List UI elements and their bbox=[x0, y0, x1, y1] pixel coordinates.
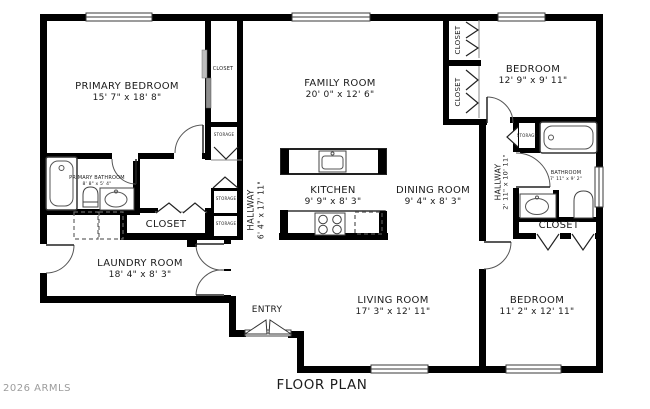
wall bbox=[205, 20, 211, 160]
closet-label-family-2: CLOSET bbox=[454, 78, 462, 107]
wall bbox=[596, 14, 603, 373]
wall bbox=[479, 238, 486, 366]
room-label-kitchen: KITCHEN 9' 9" x 8' 3" bbox=[305, 184, 362, 209]
bathtub-icon bbox=[540, 122, 597, 153]
room-dims: 7' 11" x 9' 2" bbox=[550, 177, 582, 183]
watermark: 2026 ARMLS bbox=[3, 383, 71, 394]
room-label-hallway-main: HALLWAY 6' 4" x 17' 11" bbox=[246, 181, 265, 239]
room-name: CLOSET bbox=[454, 26, 462, 55]
closet-label-strip: CLOSET bbox=[213, 66, 234, 73]
closet-label-left: CLOSET bbox=[146, 218, 187, 231]
room-dims: 20' 0" x 12' 6" bbox=[304, 90, 375, 102]
room-label-family-room: FAMILY ROOM 20' 0" x 12' 6" bbox=[304, 77, 375, 102]
room-label-dining-room: DINING ROOM 9' 4" x 8' 3" bbox=[396, 184, 470, 209]
room-dims: 9' 9" x 8' 3" bbox=[305, 197, 362, 209]
wall bbox=[187, 240, 197, 247]
room-dims: 15' 7" x 18' 8" bbox=[75, 93, 179, 105]
room-name: DINING ROOM bbox=[396, 184, 470, 197]
storage-label: STORAGE bbox=[517, 133, 537, 138]
room-label-bathroom: BATHROOM 7' 11" x 9' 2" bbox=[550, 170, 582, 182]
room-name: STORAGE bbox=[214, 132, 234, 137]
room-label-entry: ENTRY bbox=[252, 305, 283, 317]
wall bbox=[510, 117, 603, 123]
room-dims: 2' 11" x 10' 11" bbox=[503, 154, 511, 209]
room-label-living-room: LIVING ROOM 17' 3" x 12' 11" bbox=[356, 294, 431, 319]
wall bbox=[120, 233, 212, 240]
room-name: PRIMARY BATHROOM bbox=[69, 175, 125, 182]
stove-icon bbox=[315, 213, 345, 235]
wall bbox=[224, 239, 231, 297]
wall bbox=[443, 60, 481, 66]
storage-label: STORAGE bbox=[214, 132, 234, 137]
room-name: ENTRY bbox=[252, 305, 283, 317]
entry-door-icon bbox=[245, 320, 291, 336]
room-dims: 17' 3" x 12' 11" bbox=[356, 307, 431, 319]
wall bbox=[211, 213, 243, 216]
sink-icon bbox=[520, 194, 556, 218]
storage-label: STORAGE bbox=[216, 196, 236, 201]
room-label-bedroom-bottom: BEDROOM 11' 2" x 12' 11" bbox=[500, 294, 575, 319]
room-dims: 8' 8" x 5' 4" bbox=[69, 182, 125, 188]
room-dims: 11' 2" x 12' 11" bbox=[500, 307, 575, 319]
room-name: PRIMARY BEDROOM bbox=[75, 80, 179, 93]
kitchen-counter bbox=[279, 210, 388, 240]
room-name: FAMILY ROOM bbox=[304, 77, 375, 90]
wall bbox=[133, 158, 140, 215]
sink-icon bbox=[100, 188, 134, 210]
toilet-icon bbox=[574, 191, 593, 218]
wall bbox=[120, 208, 158, 213]
wall bbox=[479, 125, 486, 240]
wall bbox=[201, 153, 206, 159]
wall bbox=[297, 366, 603, 373]
wall bbox=[237, 163, 243, 240]
room-label-hallway-right: HALLWAY 2' 11" x 10' 11" bbox=[494, 154, 511, 209]
wall bbox=[513, 148, 540, 153]
wall bbox=[205, 122, 243, 127]
storage-label: STORAGE bbox=[216, 221, 236, 226]
toilet-icon bbox=[83, 187, 98, 207]
room-name: CLOSET bbox=[539, 219, 580, 232]
wall bbox=[137, 153, 175, 159]
room-dims: 6' 4" x 17' 11" bbox=[257, 181, 266, 239]
room-name: CLOSET bbox=[146, 218, 187, 231]
room-name: STORAGE bbox=[216, 221, 236, 226]
wall bbox=[40, 14, 603, 21]
wall bbox=[513, 187, 519, 221]
wall bbox=[236, 330, 246, 337]
wall bbox=[443, 14, 449, 125]
room-name: BEDROOM bbox=[500, 294, 575, 307]
room-dims: 9' 4" x 8' 3" bbox=[396, 197, 470, 209]
kitchen-island bbox=[281, 149, 386, 174]
closet-label-right: CLOSET bbox=[539, 219, 580, 232]
room-label-primary-bathroom: PRIMARY BATHROOM 8' 8" x 5' 4" bbox=[69, 175, 125, 187]
floor-plan: PRIMARY BEDROOM 15' 7" x 18' 8" FAMILY R… bbox=[0, 0, 650, 409]
room-name: STORAGE bbox=[517, 133, 537, 138]
room-label-bedroom-top: BEDROOM 12' 9" x 9' 11" bbox=[499, 63, 568, 88]
wall bbox=[513, 217, 519, 239]
wall bbox=[40, 153, 113, 159]
room-name: CLOSET bbox=[454, 78, 462, 107]
room-name: BEDROOM bbox=[499, 63, 568, 76]
room-name: STORAGE bbox=[216, 196, 236, 201]
room-name: LIVING ROOM bbox=[356, 294, 431, 307]
closet-label-family-1: CLOSET bbox=[454, 26, 462, 55]
room-name: CLOSET bbox=[213, 66, 234, 73]
wall bbox=[211, 188, 243, 191]
room-label-laundry-room: LAUNDRY ROOM 18' 4" x 8' 3" bbox=[97, 257, 183, 282]
refrigerator-icon bbox=[355, 212, 382, 234]
wall bbox=[229, 296, 236, 337]
room-label-primary-bedroom: PRIMARY BEDROOM 15' 7" x 18' 8" bbox=[75, 80, 179, 105]
sink-icon bbox=[319, 151, 346, 172]
room-name: BATHROOM bbox=[550, 170, 582, 177]
room-name: HALLWAY bbox=[246, 181, 256, 239]
wall bbox=[513, 233, 603, 239]
washer-dryer-icon bbox=[74, 212, 123, 239]
room-dims: 18' 4" x 8' 3" bbox=[97, 270, 183, 282]
page-title: FLOOR PLAN bbox=[276, 377, 367, 393]
wall bbox=[40, 296, 236, 303]
wall bbox=[237, 14, 243, 163]
room-dims: 12' 9" x 9' 11" bbox=[499, 76, 568, 88]
wall bbox=[211, 188, 214, 240]
room-name: LAUNDRY ROOM bbox=[97, 257, 183, 270]
wall bbox=[553, 190, 559, 218]
room-name: KITCHEN bbox=[305, 184, 362, 197]
